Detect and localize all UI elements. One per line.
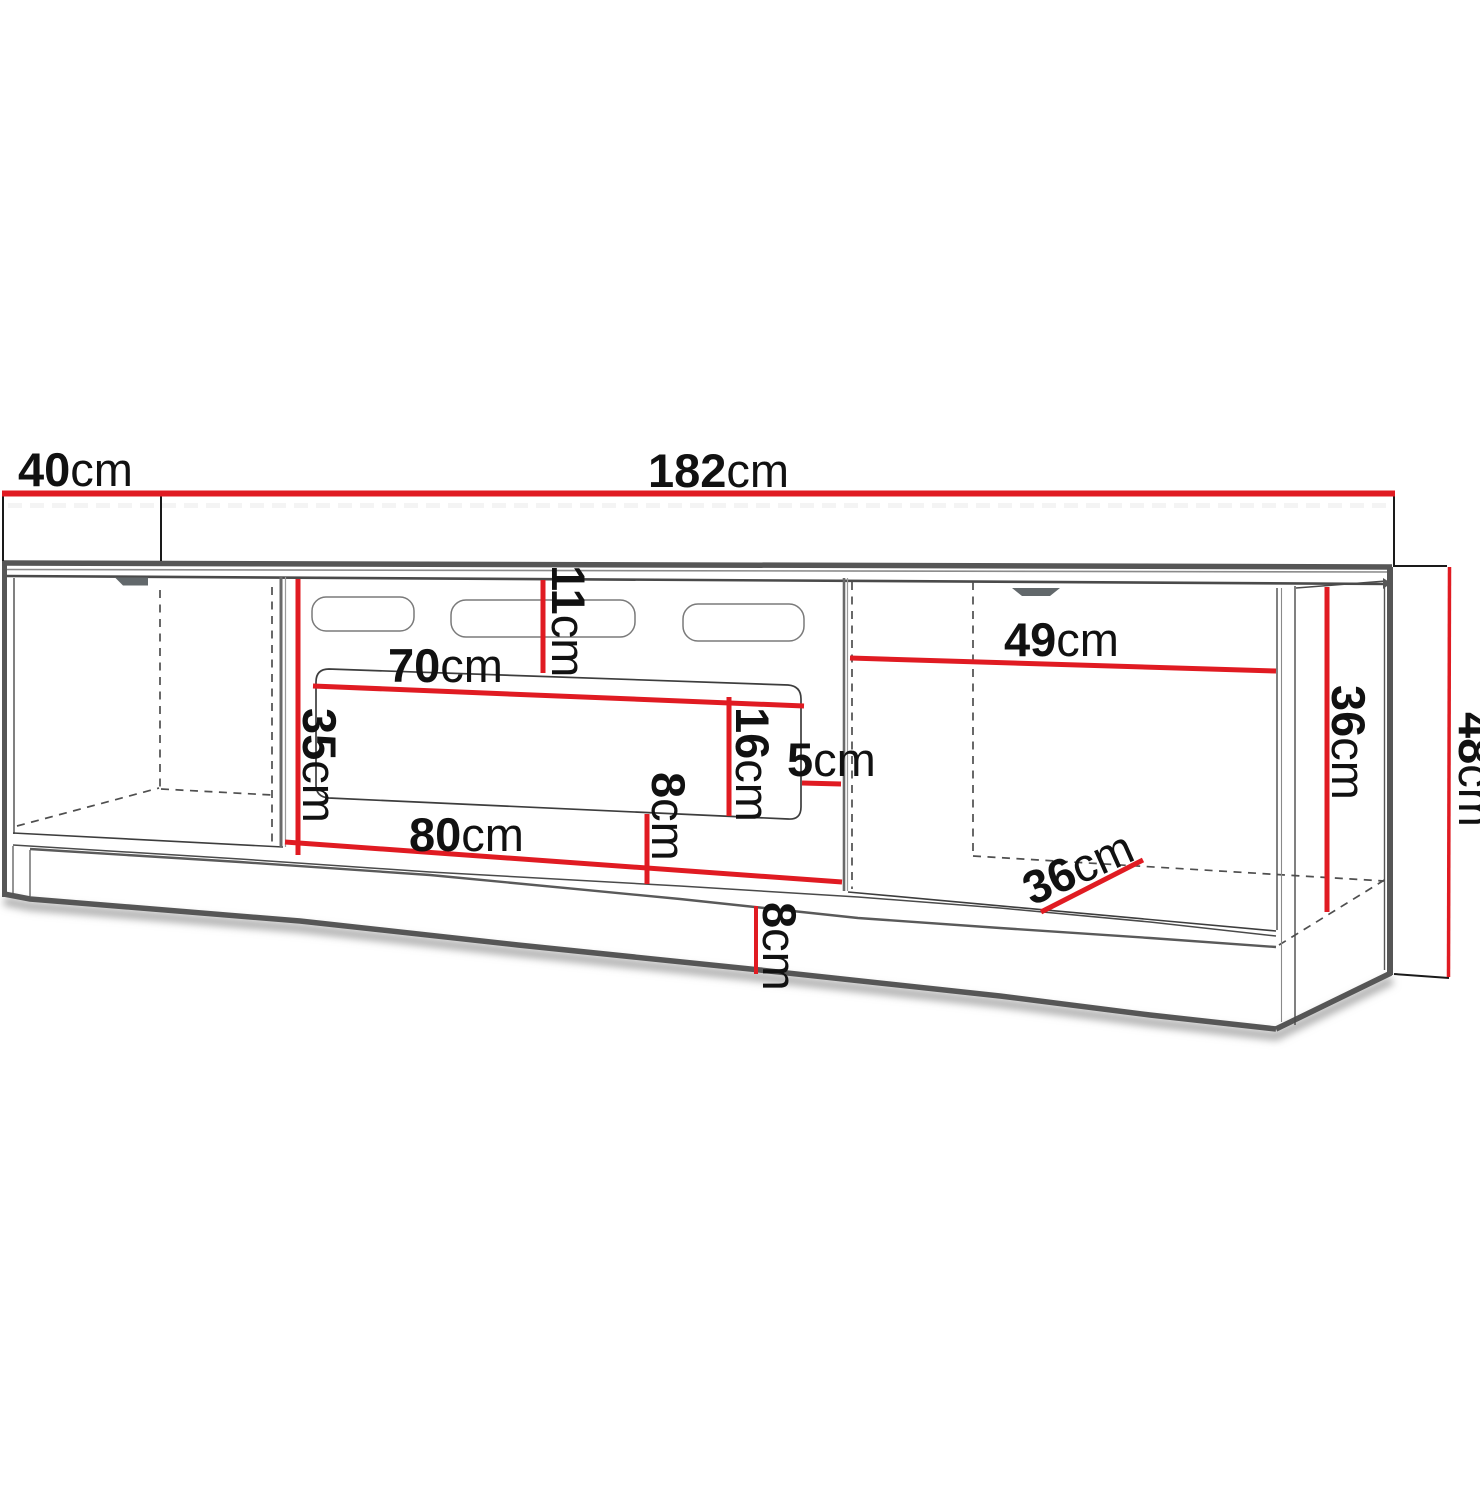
svg-text:36cm: 36cm <box>1322 685 1375 800</box>
svg-text:182cm: 182cm <box>648 444 789 497</box>
svg-text:80cm: 80cm <box>409 808 524 861</box>
svg-text:40cm: 40cm <box>18 443 133 496</box>
svg-text:48cm: 48cm <box>1449 712 1480 827</box>
svg-text:35cm: 35cm <box>293 708 346 823</box>
svg-text:11cm: 11cm <box>542 565 595 677</box>
svg-text:16cm: 16cm <box>726 707 779 822</box>
svg-text:5cm: 5cm <box>787 733 876 786</box>
svg-text:8cm: 8cm <box>642 772 695 861</box>
svg-text:49cm: 49cm <box>1004 613 1119 666</box>
svg-text:8cm: 8cm <box>753 902 806 991</box>
svg-text:70cm: 70cm <box>388 639 503 692</box>
